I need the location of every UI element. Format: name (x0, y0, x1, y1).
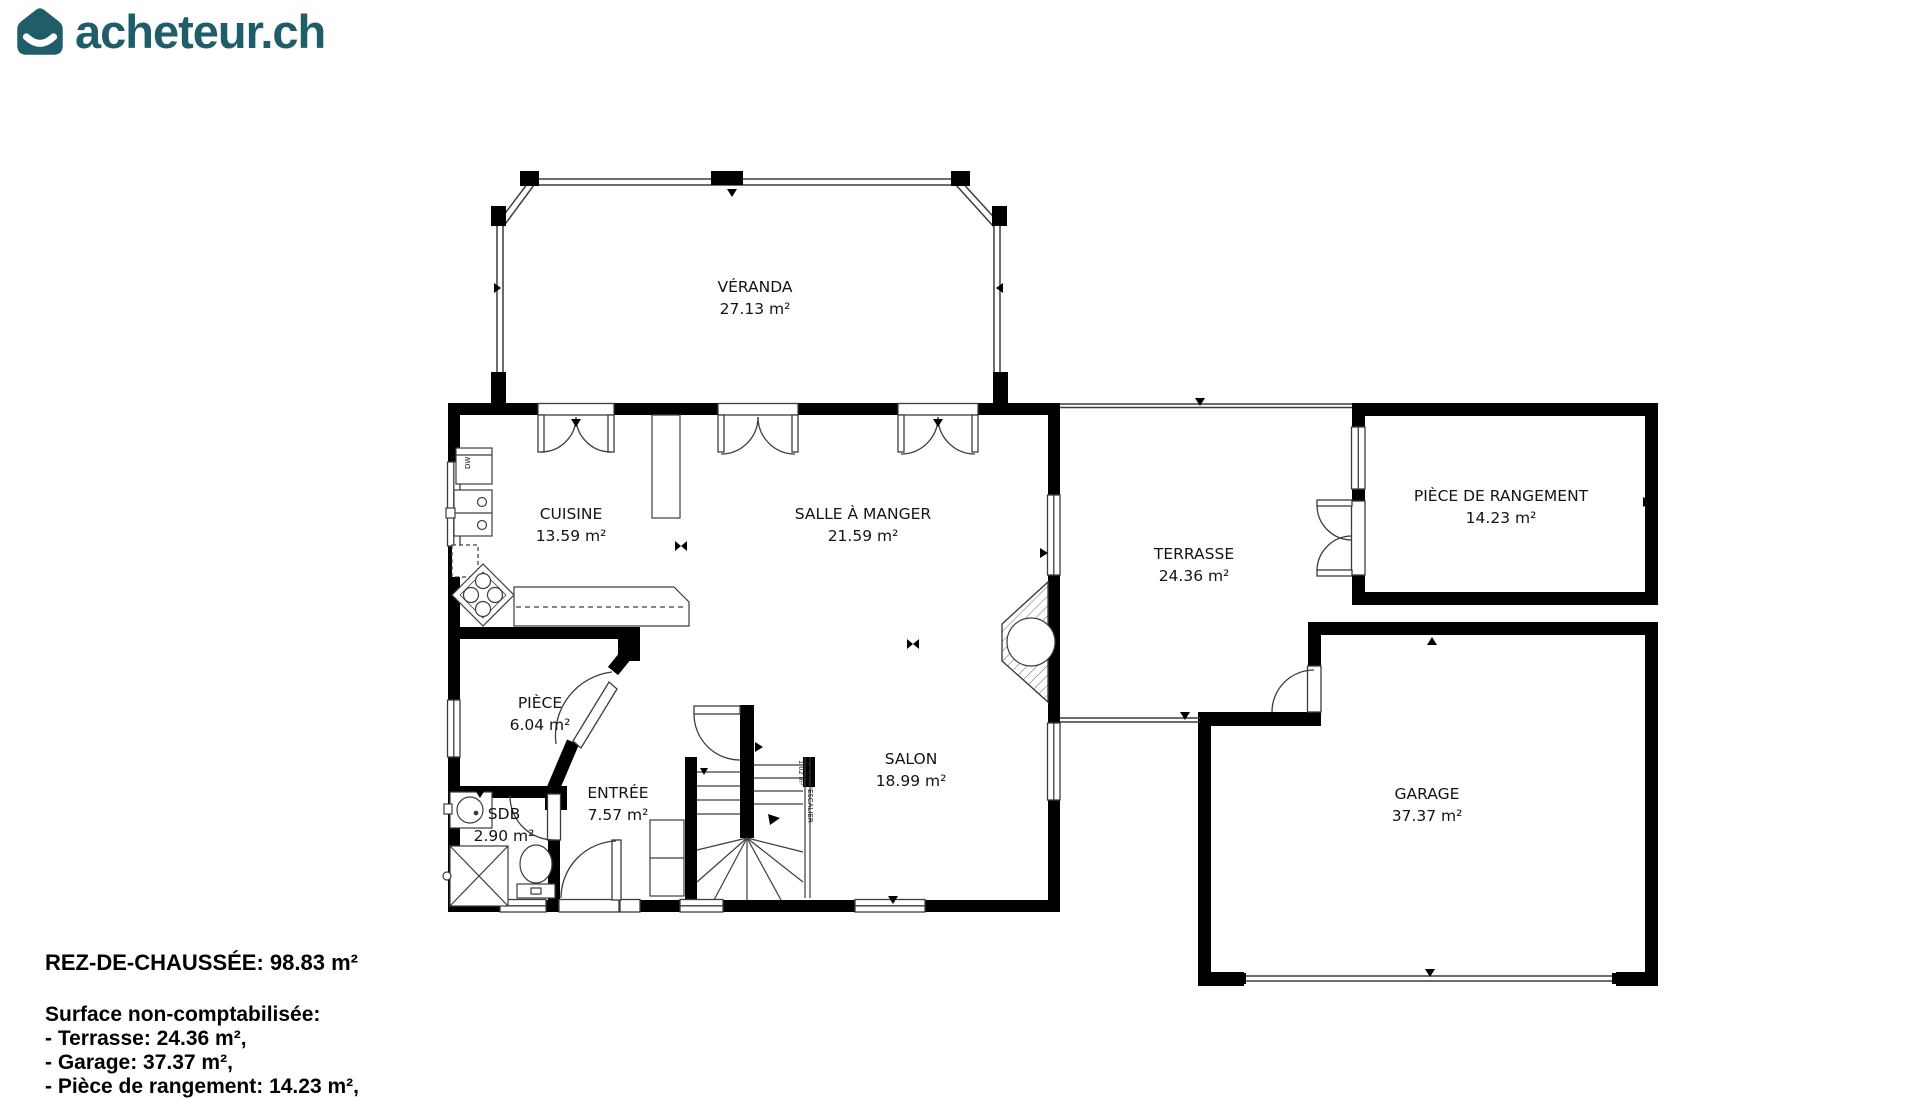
room-label-salle-a-manger: SALLE À MANGER21.59 m² (795, 503, 931, 547)
non-counted-terrasse: - Terrasse: 24.36 m², (45, 1027, 359, 1051)
room-label-cuisine: CUISINE13.59 m² (536, 503, 607, 547)
non-counted-title: Surface non-comptabilisée: (45, 1003, 359, 1027)
fireplace (1002, 582, 1055, 702)
entree-wardrobe (650, 820, 684, 896)
room-label-salon: SALON18.99 m² (876, 748, 947, 792)
stairwell-label: CAGE D'ESCALIER 1.02 m² (781, 760, 814, 823)
floor-total: REZ-DE-CHAUSSÉE: 98.83 m² (45, 950, 359, 976)
dishwasher-label: DW (464, 457, 472, 469)
surface-summary: REZ-DE-CHAUSSÉE: 98.83 m² Surface non-co… (45, 950, 359, 1099)
room-label-veranda: VÉRANDA27.13 m² (717, 276, 792, 320)
room-label-terrasse: TERRASSE24.36 m² (1154, 543, 1234, 587)
floor-plan-drawing: DW (0, 0, 1920, 1080)
non-counted-cutoff: - Pièce de rangement: 14.23 m², (45, 1075, 359, 1099)
non-counted-garage: - Garage: 37.37 m², (45, 1051, 359, 1075)
windows-layer (448, 427, 1366, 912)
floorplan-page: acheteur.ch (0, 0, 1920, 1080)
room-label-piece: PIÈCE6.04 m² (510, 692, 571, 736)
garage-door (1240, 969, 1618, 984)
pillar (652, 415, 680, 518)
room-label-entree: ENTRÉE7.57 m² (587, 782, 648, 826)
room-label-garage: GARAGE37.37 m² (1392, 783, 1463, 827)
room-label-piece-de-rangement: PIÈCE DE RANGEMENT14.23 m² (1414, 485, 1588, 529)
room-label-sdb: SDB2.90 m² (474, 803, 535, 847)
